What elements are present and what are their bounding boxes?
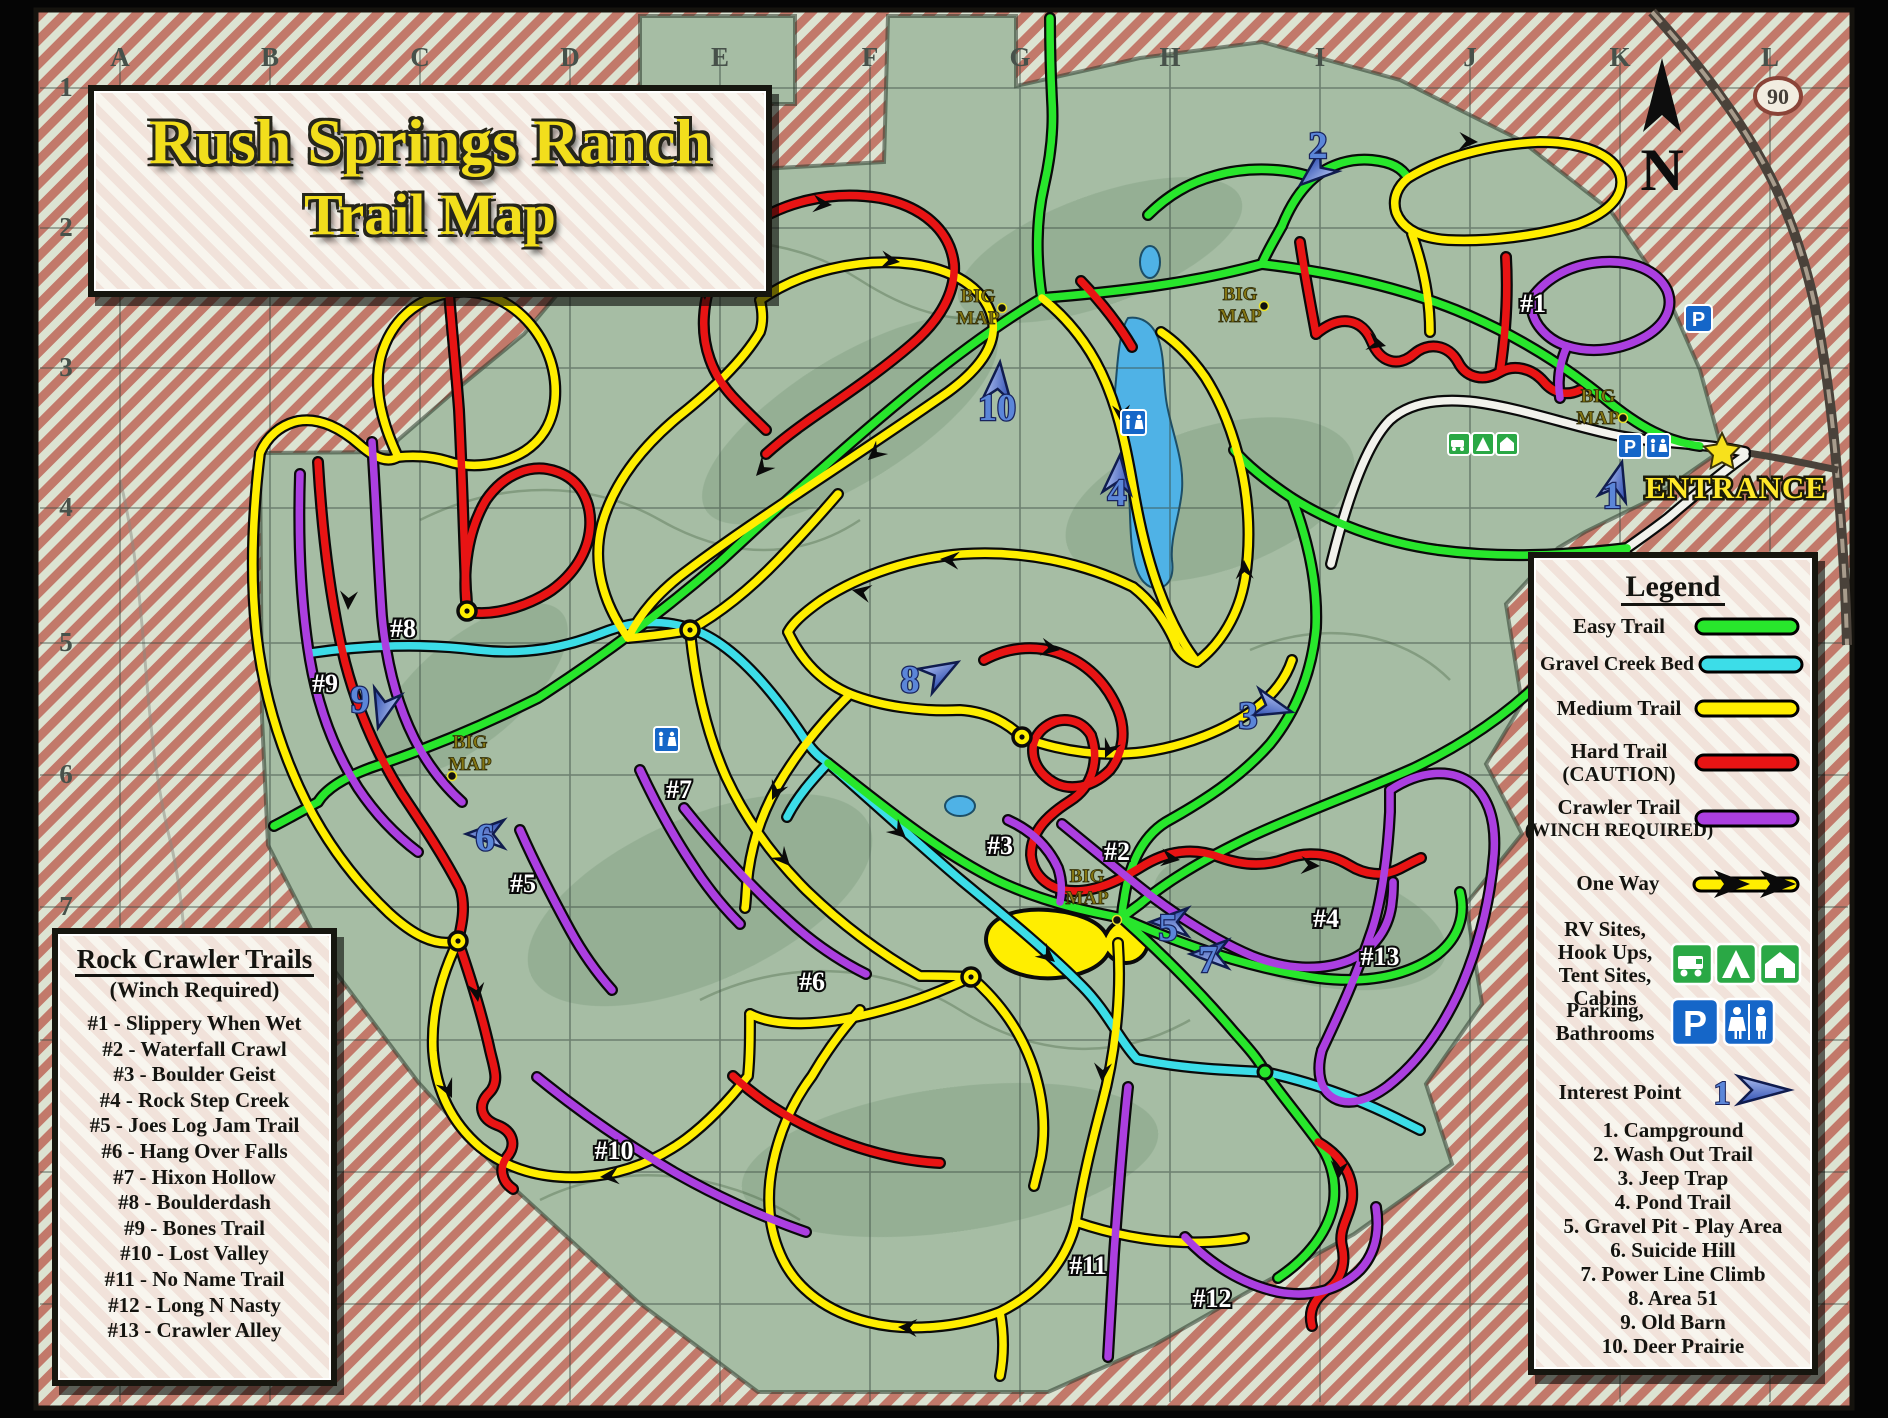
trail-number-label: #4 <box>1313 904 1339 933</box>
grid-column-label: H <box>1159 42 1180 72</box>
interest-marker-number: 1 <box>1603 475 1622 517</box>
interest-point-item: 9. Old Barn <box>1534 1310 1812 1334</box>
svg-text:MAP: MAP <box>1065 888 1109 909</box>
hard-trail-caution: (CAUTION) <box>1562 763 1675 786</box>
rock-crawler-item: #12 - Long N Nasty <box>58 1293 331 1319</box>
easy-trail-swatch <box>1694 616 1802 638</box>
rock-crawler-item: #8 - Boulderdash <box>58 1190 331 1216</box>
grid-column-label: I <box>1315 42 1326 72</box>
interest-marker-number: 8 <box>901 659 920 701</box>
trail-number-label: #1 <box>1520 289 1546 318</box>
interest-point-item: 8. Area 51 <box>1534 1286 1812 1310</box>
svg-text:BIG: BIG <box>961 286 996 307</box>
legend-row-hard: Hard Trail (CAUTION) <box>1544 740 1802 786</box>
interest-point-icon: 1 <box>1700 1072 1800 1112</box>
interest-marker-number: 3 <box>1239 695 1258 737</box>
trail-number-label: #13 <box>1361 942 1400 971</box>
trail-number-label: #8 <box>390 614 416 643</box>
rock-crawler-item: #1 - Slippery When Wet <box>58 1011 331 1037</box>
grid-column-label: D <box>560 42 580 72</box>
svg-text:P: P <box>1624 437 1636 457</box>
trail-number-label: #3 <box>987 831 1013 860</box>
svg-text:BIG: BIG <box>453 732 488 753</box>
rock-crawler-list: #1 - Slippery When Wet #2 - Waterfall Cr… <box>58 1011 331 1344</box>
interest-point-item: 5. Gravel Pit - Play Area <box>1534 1214 1812 1238</box>
svg-text:BIG: BIG <box>1223 284 1258 305</box>
medium-trail-swatch <box>1694 698 1802 720</box>
trail-number-label: #7 <box>666 775 692 804</box>
grid-column-label: B <box>261 42 279 72</box>
interest-marker-number: 6 <box>476 817 495 859</box>
legend-row-one-way: One Way <box>1544 866 1802 900</box>
rock-crawler-item: #5 - Joes Log Jam Trail <box>58 1113 331 1139</box>
rock-crawler-item: #3 - Boulder Geist <box>58 1062 331 1088</box>
grid-row-label: 3 <box>59 352 73 382</box>
map-title-panel: Rush Springs Ranch Trail Map <box>88 85 772 297</box>
trail-number-label: #12 <box>1193 1284 1232 1313</box>
interest-point-item: 7. Power Line Climb <box>1534 1262 1812 1286</box>
crawler-trail-label: Crawler Trail <box>1557 796 1680 819</box>
interest-marker-number: 9 <box>351 679 370 721</box>
restroom-icon <box>1121 410 1146 435</box>
legend-panel: Legend Easy Trail Gravel Creek Bed Mediu… <box>1528 552 1818 1375</box>
trail-number-label: #10 <box>595 1136 634 1165</box>
legend-row-medium: Medium Trail <box>1544 696 1802 721</box>
grid-row-label: 7 <box>59 891 73 921</box>
svg-text:MAP: MAP <box>1576 408 1620 429</box>
rock-crawler-item: #2 - Waterfall Crawl <box>58 1037 331 1063</box>
rock-crawler-item: #11 - No Name Trail <box>58 1267 331 1293</box>
interest-marker-number: 2 <box>1309 125 1328 167</box>
svg-text:P: P <box>1683 1003 1707 1044</box>
grid-row-label: 6 <box>59 759 73 789</box>
svg-text:BIG: BIG <box>1581 386 1616 407</box>
legend-row-creek: Gravel Creek Bed <box>1536 653 1808 676</box>
hard-trail-label: Hard Trail <box>1571 740 1668 763</box>
interest-point-item: 1. Campground <box>1534 1118 1812 1142</box>
rock-crawler-item: #6 - Hang Over Falls <box>58 1139 331 1165</box>
interest-point-item: 2. Wash Out Trail <box>1534 1142 1812 1166</box>
rock-crawler-item: #10 - Lost Valley <box>58 1241 331 1267</box>
interest-point-item: 3. Jeep Trap <box>1534 1166 1812 1190</box>
grid-row-label: 2 <box>59 212 73 242</box>
interest-marker-number: 7 <box>1199 939 1218 981</box>
grid-column-label: L <box>1761 42 1779 72</box>
legend-row-crawler: Crawler Trail (WINCH REQUIRED) <box>1544 796 1802 842</box>
creek-swatch <box>1698 654 1806 676</box>
entrance-label: ENTRANCE <box>1645 470 1827 505</box>
trail-map-page: A B C D E F G H I J K L 1 2 3 4 5 6 7 <box>0 0 1888 1418</box>
trail-number-label: #11 <box>1069 1251 1107 1280</box>
interest-marker-number: 10 <box>978 387 1016 429</box>
grid-column-label: K <box>1609 42 1630 72</box>
legend-row-parking: Parking, Bathrooms P <box>1540 996 1806 1048</box>
rock-crawler-title: Rock Crawler Trails <box>58 944 331 975</box>
big-map-label: BIGMAP <box>448 732 493 781</box>
crawler-trail-winch: (WINCH REQUIRED) <box>1525 819 1713 842</box>
svg-text:P: P <box>1692 309 1705 331</box>
compass-north-label: N <box>1640 137 1683 203</box>
parking-icon: P <box>1685 305 1712 332</box>
parking-bathrooms-label: Parking, Bathrooms <box>1540 999 1670 1045</box>
route-90-shield: 90 <box>1755 78 1801 114</box>
trail-number-label: #2 <box>1104 837 1130 866</box>
restroom-icon <box>654 727 679 752</box>
grid-column-label: G <box>1009 42 1030 72</box>
rv-tent-cabin-icons <box>1670 940 1802 988</box>
svg-text:BIG: BIG <box>1070 866 1105 887</box>
grid-column-label: C <box>410 42 430 72</box>
grid-column-label: J <box>1463 42 1477 72</box>
grid-row-label: 4 <box>59 492 73 522</box>
interest-marker-number: 4 <box>1108 472 1127 514</box>
rock-crawler-subtitle: (Winch Required) <box>58 977 331 1003</box>
one-way-icon <box>1692 866 1802 900</box>
interest-point-item: 4. Pond Trail <box>1534 1190 1812 1214</box>
rock-crawler-item: #9 - Bones Trail <box>58 1216 331 1242</box>
rock-crawler-item: #13 - Crawler Alley <box>58 1318 331 1344</box>
trail-number-label: #6 <box>799 967 825 996</box>
svg-text:MAP: MAP <box>1218 306 1262 327</box>
rock-crawler-item: #7 - Hixon Hollow <box>58 1165 331 1191</box>
map-title-line2: Trail Map <box>94 181 766 248</box>
svg-text:MAP: MAP <box>956 308 1000 329</box>
legend-row-easy: Easy Trail <box>1544 614 1802 639</box>
crawler-trail-swatch <box>1694 808 1802 830</box>
route-number: 90 <box>1767 84 1789 109</box>
interest-marker-number: 5 <box>1159 907 1178 949</box>
trail-number-label: #5 <box>510 869 536 898</box>
parking-bathrooms-icons: P <box>1670 996 1780 1048</box>
map-title-line1: Rush Springs Ranch <box>94 105 766 179</box>
hard-trail-swatch <box>1694 752 1802 774</box>
grid-column-label: E <box>711 42 729 72</box>
campground-icons <box>1448 433 1518 455</box>
rock-crawler-item: #4 - Rock Step Creek <box>58 1088 331 1114</box>
grid-row-label: 1 <box>59 72 73 102</box>
legend-row-interest: Interest Point 1 <box>1540 1072 1806 1112</box>
rock-crawler-panel: Rock Crawler Trails (Winch Required) #1 … <box>52 928 337 1386</box>
grid-row-label: 5 <box>59 627 73 657</box>
interest-point-item: 10. Deer Prairie <box>1534 1334 1812 1358</box>
legend-title: Legend <box>1534 570 1812 604</box>
interest-point-item: 6. Suicide Hill <box>1534 1238 1812 1262</box>
svg-text:1: 1 <box>1714 1075 1731 1112</box>
grid-column-label: A <box>110 42 130 72</box>
grid-column-label: F <box>862 42 879 72</box>
interest-points-list: 1. Campground 2. Wash Out Trail 3. Jeep … <box>1534 1118 1812 1358</box>
trail-number-label: #9 <box>312 669 338 698</box>
